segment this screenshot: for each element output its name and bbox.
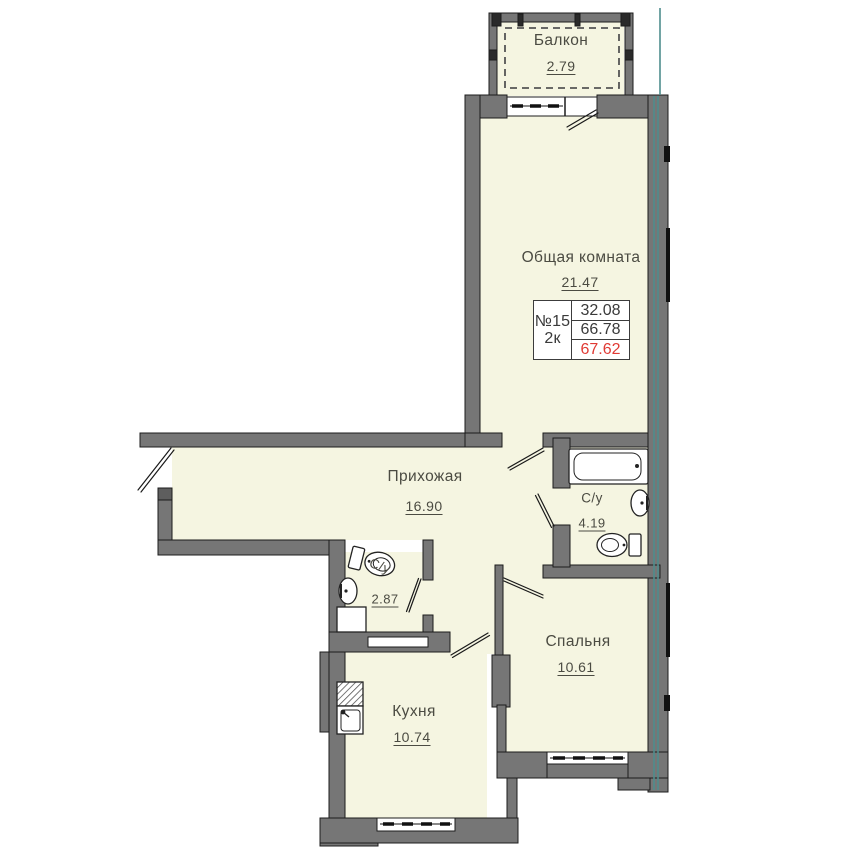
room-label-balcony: Балкон (534, 32, 588, 50)
unit-area-total: 66.78 (572, 320, 629, 339)
glazing-post (518, 14, 523, 26)
wall-segment (547, 764, 628, 778)
facade-notch (664, 146, 670, 162)
room-area-hallway: 16.90 (405, 498, 442, 514)
bathroom-small-sink-icon (339, 578, 357, 604)
bathroom-main-sink-icon (631, 490, 649, 516)
room-area-bathroom-main: 4.19 (579, 516, 606, 531)
unit-area-total-with-balcony: 67.62 (572, 339, 629, 359)
wall-segment (628, 752, 668, 778)
kitchen-wall-niche (368, 637, 428, 647)
room-area-bathroom-small: 2.87 (372, 592, 399, 607)
wall-segment (497, 705, 506, 755)
unit-id-cell: №15 2к (534, 301, 572, 359)
kitchen-sink-icon (337, 706, 363, 734)
unit-area-living: 32.08 (572, 301, 629, 320)
cabinet-icon (337, 607, 366, 632)
glazing-post (625, 50, 633, 60)
floor-plan-canvas: Балкон 2.79 Общая комната 21.47 Прихожая… (0, 0, 849, 849)
wall-segment (553, 525, 570, 567)
room-area-kitchen: 10.74 (393, 729, 430, 745)
room-label-hallway: Прихожая (387, 468, 462, 486)
room-fill-bedroom-door-gap (503, 565, 543, 578)
wall-segment (497, 752, 547, 778)
room-area-living-room: 21.47 (561, 274, 598, 290)
floor-plan-drawing (0, 0, 849, 849)
wall-segment (489, 13, 633, 22)
unit-info-table: №15 2к 32.08 66.78 67.62 (533, 300, 630, 360)
glazing-post (575, 14, 580, 26)
room-label-living-room: Общая комната (522, 249, 641, 267)
bathroom-main-toilet-icon (597, 534, 641, 557)
room-label-kitchen: Кухня (392, 703, 435, 721)
wall-segment (158, 540, 345, 555)
room-area-balcony: 2.79 (547, 58, 576, 74)
wall-segment (465, 433, 502, 447)
wall-segment (553, 438, 570, 488)
door-leaf-entrance (138, 448, 174, 492)
room-fill-bath-main-door-gap (553, 488, 570, 525)
room-fills (172, 20, 648, 819)
glazing-post (621, 13, 630, 26)
room-fill-bath-small-door-gap (423, 580, 433, 615)
room-label-bathroom-main: С/у (581, 491, 602, 506)
wall-segment (495, 565, 503, 657)
wall-segment (465, 95, 480, 445)
room-label-bedroom: Спальня (545, 633, 610, 651)
room-area-bedroom: 10.61 (557, 659, 594, 675)
wall-segment (423, 540, 433, 580)
unit-type: 2к (544, 330, 560, 347)
wall-segment (320, 652, 329, 732)
bathtub-icon (569, 449, 648, 484)
wall-segment (140, 433, 465, 447)
facade-notch (666, 583, 670, 657)
glazing-post (492, 13, 501, 26)
facade-notch (666, 228, 670, 302)
unit-number: №15 (535, 313, 571, 330)
facade-notch (664, 695, 670, 711)
stove-hatch-icon (337, 682, 363, 706)
room-fill-living-door-gap (502, 433, 543, 447)
glazing-post (489, 50, 497, 60)
wall-segment (492, 655, 510, 707)
